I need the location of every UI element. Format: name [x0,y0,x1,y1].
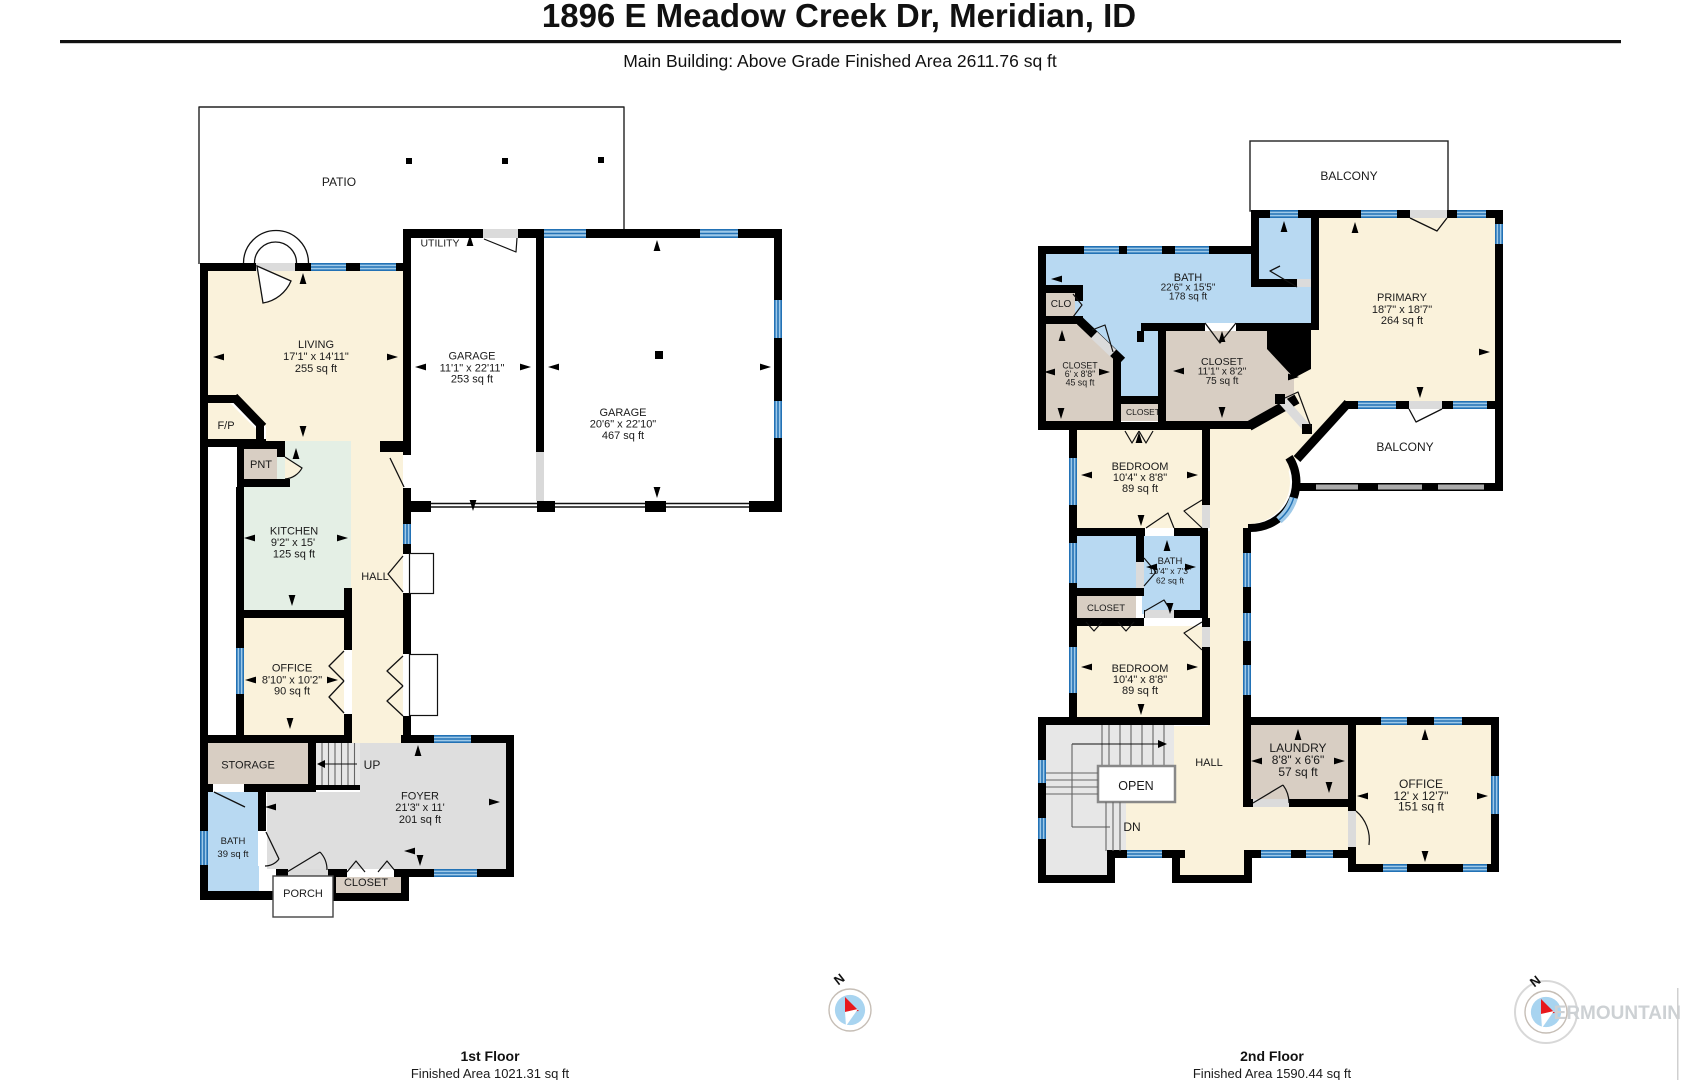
svg-text:STORAGE: STORAGE [221,760,275,772]
svg-text:LIVING: LIVING [298,339,334,351]
svg-text:2nd Floor: 2nd Floor [1240,1048,1304,1064]
svg-text:BALCONY: BALCONY [1320,169,1377,183]
svg-text:57 sq ft: 57 sq ft [1278,765,1318,779]
svg-text:89 sq ft: 89 sq ft [1122,483,1158,495]
svg-text:39 sq ft: 39 sq ft [217,849,249,860]
svg-text:UTILITY: UTILITY [420,238,459,250]
svg-text:GARAGE: GARAGE [448,351,495,363]
svg-text:125 sq ft: 125 sq ft [273,549,315,561]
svg-text:PNT: PNT [250,459,272,471]
svg-text:CLOSET: CLOSET [344,877,388,889]
svg-text:253 sq ft: 253 sq ft [451,374,493,386]
svg-text:BATH: BATH [221,836,246,847]
svg-text:ERMOUNTAIN: ERMOUNTAIN [1554,1003,1681,1024]
svg-text:89 sq ft: 89 sq ft [1122,685,1158,697]
svg-text:KITCHEN: KITCHEN [270,526,318,538]
svg-text:PATIO: PATIO [322,175,356,189]
svg-text:75 sq ft: 75 sq ft [1206,376,1239,387]
svg-text:HALL: HALL [361,571,389,583]
svg-text:OPEN: OPEN [1118,779,1153,793]
svg-text:17'1" x 14'11": 17'1" x 14'11" [283,351,349,363]
svg-text:151 sq ft: 151 sq ft [1398,800,1445,814]
svg-text:178 sq ft: 178 sq ft [1169,292,1208,303]
svg-text:PRIMARY: PRIMARY [1377,292,1428,304]
svg-text:1896 E Meadow Creek Dr, Meridi: 1896 E Meadow Creek Dr, Meridian, ID [542,0,1136,34]
svg-text:467 sq ft: 467 sq ft [602,430,644,442]
svg-text:CLOSET: CLOSET [1087,603,1125,614]
svg-text:21'3" x 11': 21'3" x 11' [395,802,445,814]
svg-text:FOYER: FOYER [401,791,439,803]
svg-text:20'6" x 22'10": 20'6" x 22'10" [590,419,657,431]
svg-text:GARAGE: GARAGE [599,407,646,419]
svg-text:F/P: F/P [217,420,234,432]
svg-text:CLOSET: CLOSET [1126,407,1160,417]
svg-text:45 sq ft: 45 sq ft [1066,378,1095,388]
svg-text:OFFICE: OFFICE [272,663,312,675]
svg-text:BALCONY: BALCONY [1376,440,1433,454]
svg-text:1st Floor: 1st Floor [460,1048,520,1064]
svg-text:DN: DN [1123,820,1140,834]
svg-text:62 sq ft: 62 sq ft [1156,576,1185,586]
svg-text:UP: UP [364,758,381,772]
svg-text:9'2" x 15': 9'2" x 15' [271,537,315,549]
svg-text:201 sq ft: 201 sq ft [399,814,441,826]
svg-text:Main Building: Above Grade Fin: Main Building: Above Grade Finished Area… [623,51,1057,71]
svg-text:264 sq ft: 264 sq ft [1381,315,1423,327]
svg-text:CLO: CLO [1051,299,1072,310]
svg-text:255 sq ft: 255 sq ft [295,363,337,375]
svg-text:HALL: HALL [1195,757,1223,769]
svg-text:90 sq ft: 90 sq ft [274,686,310,698]
svg-text:Finished Area 1590.44 sq ft: Finished Area 1590.44 sq ft [1193,1066,1352,1080]
svg-text:PORCH: PORCH [283,888,323,900]
svg-text:Finished Area 1021.31 sq ft: Finished Area 1021.31 sq ft [411,1066,570,1080]
